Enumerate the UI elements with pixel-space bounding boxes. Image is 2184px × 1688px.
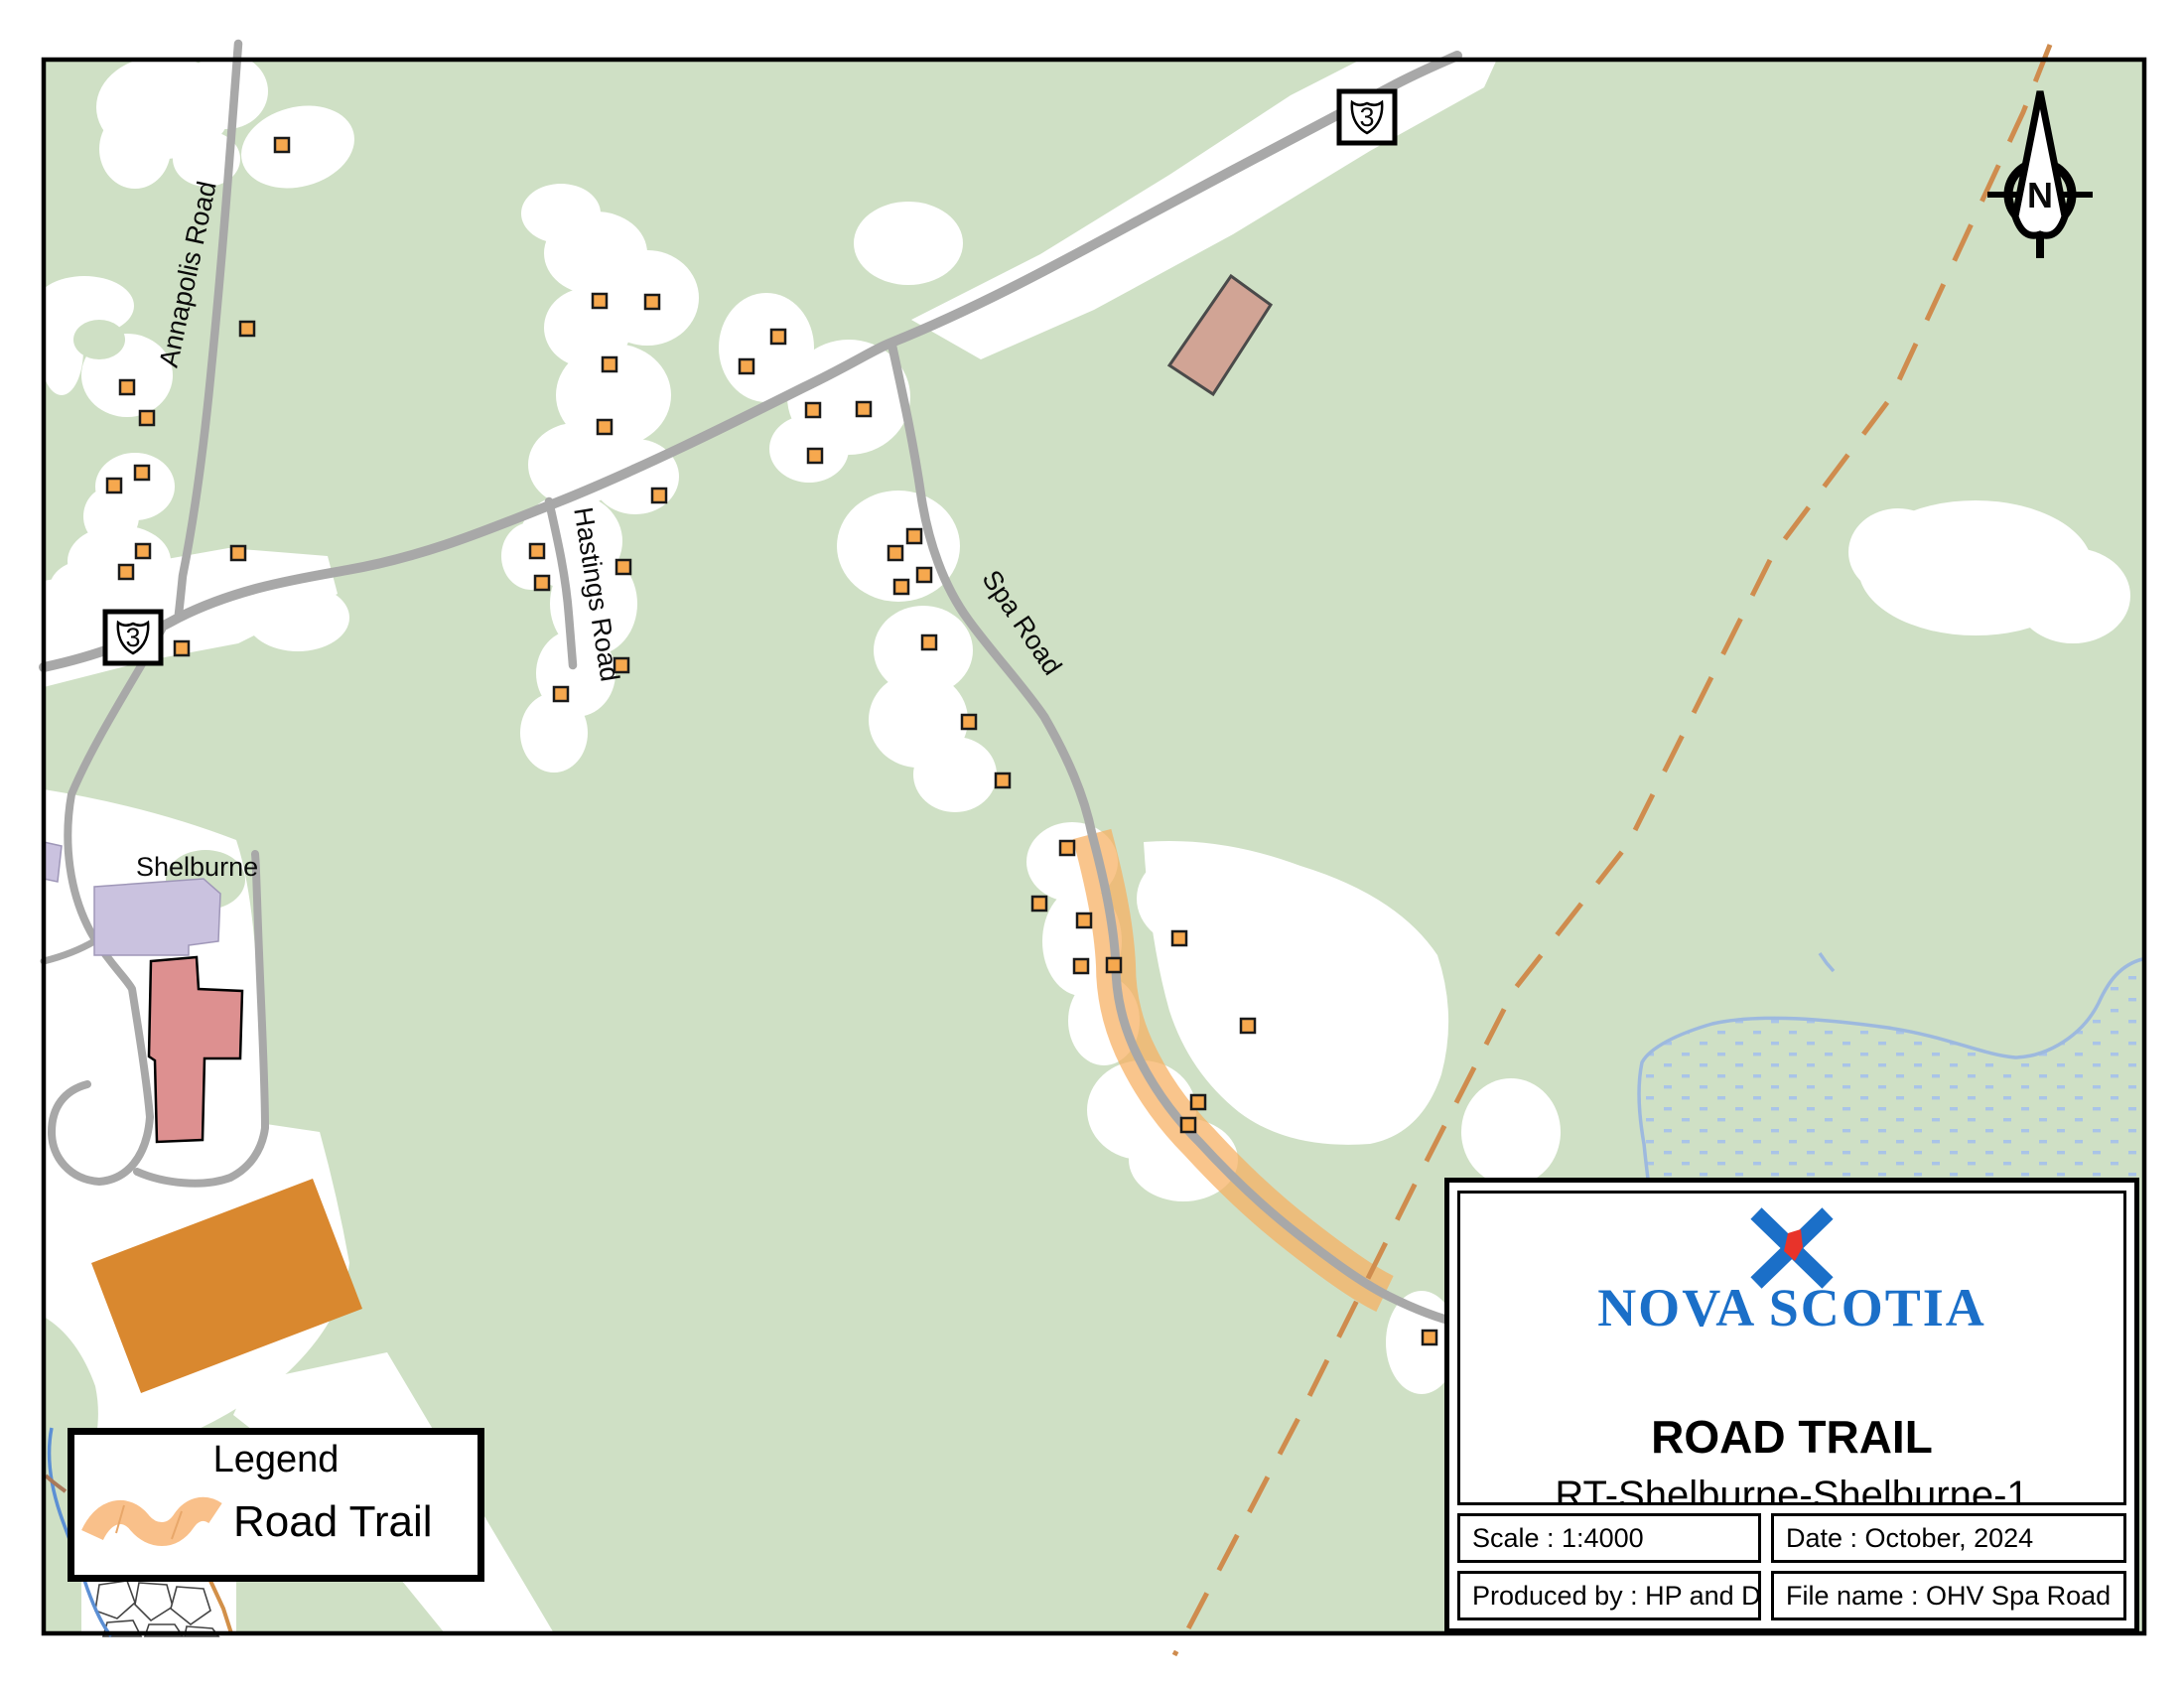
- rubble-pattern: [95, 1581, 218, 1636]
- highway-3-shield-west: 3: [105, 612, 161, 663]
- building-marker: [808, 449, 822, 463]
- building-marker: [240, 322, 254, 336]
- building-marker: [231, 546, 245, 560]
- building-marker: [107, 479, 121, 492]
- building-marker: [535, 576, 549, 590]
- file-name-cell: File name : OHV Spa Road: [1771, 1571, 2126, 1620]
- building-marker: [1241, 1019, 1255, 1033]
- shield-number: 3: [125, 623, 140, 652]
- legend-box: Legend Road Trail: [68, 1428, 484, 1582]
- building-marker: [593, 294, 607, 308]
- building-marker: [120, 380, 134, 394]
- building-marker: [806, 403, 820, 417]
- purple-building: [94, 879, 220, 955]
- building-marker: [1077, 914, 1091, 927]
- north-letter: N: [2027, 175, 2053, 215]
- building-marker: [1191, 1095, 1205, 1109]
- building-marker: [996, 774, 1010, 787]
- date-cell: Date : October, 2024: [1771, 1513, 2126, 1563]
- building-marker: [740, 359, 753, 373]
- building-marker: [1060, 841, 1074, 855]
- building-marker: [1032, 897, 1046, 911]
- building-marker: [530, 544, 544, 558]
- building-marker: [1172, 931, 1186, 945]
- building-marker: [1107, 958, 1121, 972]
- building-marker: [554, 687, 568, 701]
- building-marker: [119, 565, 133, 579]
- nova-scotia-wordmark: NOVA SCOTIA: [1460, 1277, 2123, 1338]
- scale-cell: Scale : 1:4000: [1457, 1513, 1761, 1563]
- map-page: 3 3 N Annapolis Road Hastings Road Spa R…: [0, 0, 2184, 1688]
- legend-item-road-trail: Road Trail: [74, 1491, 478, 1553]
- building-marker: [857, 402, 871, 416]
- building-marker: [652, 489, 666, 502]
- building-marker: [962, 715, 976, 729]
- road-trail-symbol-icon: [74, 1491, 233, 1553]
- building-marker: [275, 138, 289, 152]
- highway-3-shield-north: 3: [1339, 91, 1395, 143]
- building-marker: [1074, 959, 1088, 973]
- building-marker: [645, 295, 659, 309]
- title-block-main-panel: NOVA SCOTIA ROAD TRAIL RT-Shelburne-Shel…: [1457, 1191, 2126, 1505]
- building-marker: [922, 635, 936, 649]
- map-title: ROAD TRAIL: [1460, 1410, 2123, 1464]
- building-marker: [616, 560, 630, 574]
- building-marker: [907, 529, 921, 543]
- building-marker: [1423, 1331, 1436, 1344]
- title-block-info-grid: Scale : 1:4000 Date : October, 2024 Prod…: [1457, 1513, 2126, 1620]
- purple-building-small: [44, 842, 62, 882]
- produced-by-cell: Produced by : HP and D: [1457, 1571, 1761, 1620]
- building-marker: [175, 641, 189, 655]
- building-marker: [888, 546, 902, 560]
- legend-title: Legend: [74, 1439, 478, 1481]
- building-marker: [603, 357, 616, 371]
- shelburne-label: Shelburne: [136, 852, 258, 882]
- title-block: NOVA SCOTIA ROAD TRAIL RT-Shelburne-Shel…: [1444, 1178, 2139, 1633]
- legend-item-label: Road Trail: [233, 1497, 433, 1547]
- nova-scotia-logo: NOVA SCOTIA: [1460, 1207, 2123, 1338]
- map-subtitle: RT-Shelburne-Shelburne-1: [1460, 1474, 2123, 1505]
- building-marker: [917, 568, 931, 582]
- building-marker: [135, 466, 149, 480]
- building-marker: [1181, 1118, 1195, 1132]
- shield-number: 3: [1359, 102, 1374, 132]
- building-marker: [140, 411, 154, 425]
- building-marker: [598, 420, 612, 434]
- building-marker: [136, 544, 150, 558]
- building-marker: [894, 580, 908, 594]
- building-marker: [771, 330, 785, 344]
